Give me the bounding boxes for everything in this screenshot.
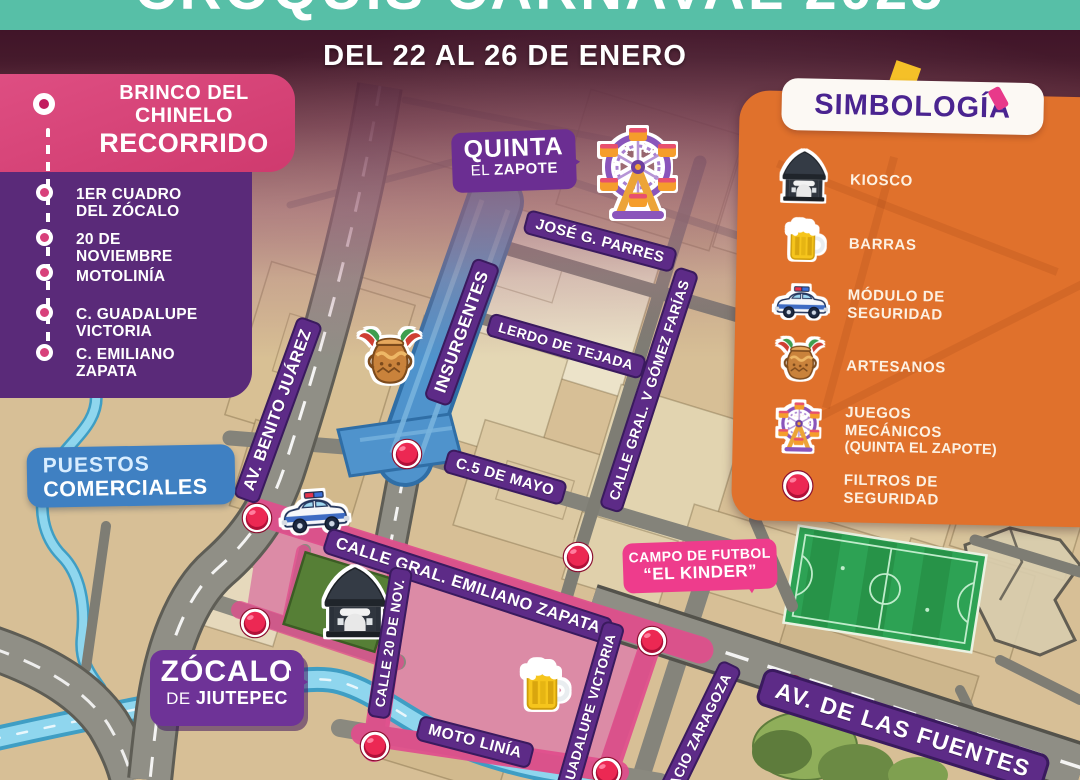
police-car-icon [772,280,831,327]
legend-item-label: JUEGOS MECÁNICOS(QUINTA EL ZAPOTE) [844,404,997,460]
beer-mug-icon [512,656,572,721]
security-filter-dot [392,439,423,470]
route-stop-marker [36,344,53,361]
security-filter-dot [563,542,594,573]
route-stop: MOTOLINÍA [76,268,165,285]
zocalo-jiutepec-callout: ZÓCALO DE JIUTEPEC [150,650,304,726]
route-start-marker [33,93,55,115]
puestos-comerciales-label: PUESTOS COMERCIALES [26,444,235,508]
security-filter-dot [637,626,668,657]
route-heading-2: CHINELO [84,104,284,128]
route-stop-marker [36,264,53,281]
ferris-wheel-icon [586,121,690,230]
route-stop-marker [36,304,53,321]
security-filter-dot [240,608,271,639]
route-stop-marker [36,229,53,246]
route-stop: 20 DE NOVIEMBRE [76,231,173,265]
legend-item-label: MÓDULO DE SEGURIDAD [847,287,945,324]
ferris-wheel-icon [770,398,827,460]
legend-item-label: FILTROS DE SEGURIDAD [843,472,939,509]
route-heading-3: RECORRIDO [84,128,284,158]
red-filter-icon [781,469,814,507]
artisan-pot-icon [355,326,425,401]
campo-futbol-kinder-callout: CAMPO DE FUTBOL “EL KINDER” [622,538,778,593]
security-filter-dot [242,503,273,534]
zocalo-title: ZÓCALO [150,656,304,688]
artisan-pot-icon [774,336,827,394]
legend-item-label: ARTESANOS [846,357,946,377]
event-dates: DEL 22 AL 26 DE ENERO [0,40,1010,73]
beer-mug-icon [778,216,827,270]
route-stop: C. GUADALUPE VICTORIA [76,306,198,340]
legend-panel: SIMBOLOGÍA KIOSCO BARRAS MÓDULO DE SEGUR… [731,90,1080,527]
kiosk-icon [777,149,832,209]
quinta-el-zapote-callout: QUINTA EL ZAPOTE [451,129,577,193]
security-filter-dot [592,757,623,780]
security-filter-dot [360,731,391,762]
carnival-map-poster: JOSÉ G. PARRES INSURGENTES AV. BENITO JU… [0,0,1080,780]
poster-title: CROQUIS CARNAVAL 2025 [0,0,1080,23]
title-band: CROQUIS CARNAVAL 2025 [0,0,1080,30]
legend-item-label: BARRAS [849,235,917,254]
route-heading-1: BRINCO DEL [84,82,284,104]
route-stop: 1ER CUADRO DEL ZÓCALO [76,186,181,220]
route-panel-header: BRINCO DEL CHINELO RECORRIDO [0,74,295,172]
legend-item-sublabel: (QUINTA EL ZAPOTE) [844,439,997,459]
legend-item-label: KIOSCO [850,171,913,190]
route-stop: C. EMILIANO ZAPATA [76,346,175,380]
route-stop-marker [36,184,53,201]
